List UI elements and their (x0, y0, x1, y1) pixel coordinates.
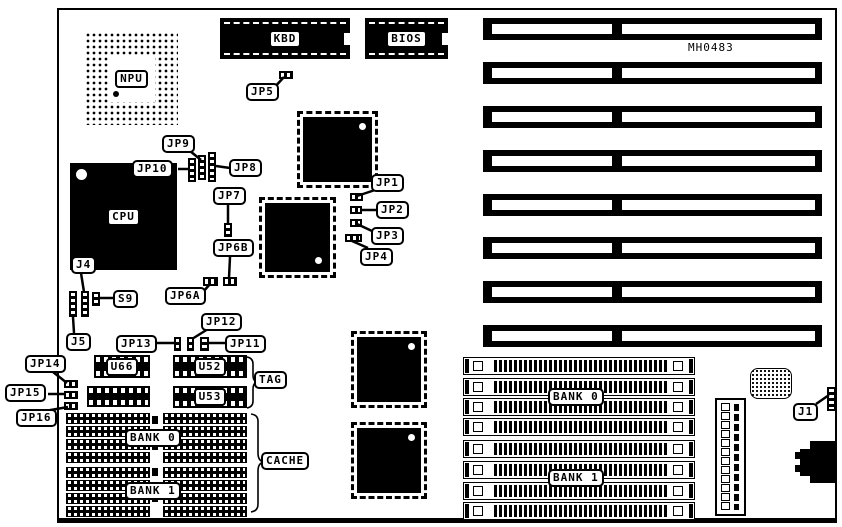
cpu-label: CPU (107, 208, 140, 226)
qfp-chip-2 (265, 203, 330, 272)
cache-dip-chip (163, 506, 247, 517)
chip-notch (344, 33, 351, 45)
chip-notch (442, 33, 449, 45)
j4-label: J4 (71, 256, 96, 274)
j4-header-b (81, 291, 89, 317)
simm-end-tab (689, 400, 693, 414)
isa-slot-segment-short (492, 331, 612, 341)
kbd-label: KBD (269, 30, 302, 48)
simm-latch (673, 402, 683, 412)
isa-slot-4 (483, 150, 822, 172)
bios-label: BIOS (386, 30, 427, 48)
jp4-label: JP4 (360, 248, 393, 266)
simm-latch (673, 465, 683, 475)
jp6b-label: JP6B (213, 239, 254, 257)
dip-below-u66 (87, 386, 150, 407)
power-pin (721, 448, 730, 456)
isa-slot-2 (483, 62, 822, 84)
simm-socket-5 (463, 440, 695, 458)
u66-chip: U66 (94, 355, 150, 378)
power-connector-key (734, 404, 739, 510)
simm-end-tab (465, 400, 469, 414)
isa-slot-segment-long (622, 287, 815, 297)
din-pin-block (795, 465, 802, 472)
jp7-jumper (224, 223, 232, 237)
power-pin (721, 466, 730, 474)
jp10-label: JP10 (132, 160, 173, 178)
npu-pga-socket: NPU (85, 32, 178, 125)
power-pin (721, 421, 730, 429)
simm-end-tab (689, 359, 693, 373)
jp12-jumper (187, 337, 194, 351)
simm-end-tab (689, 463, 693, 477)
cache-dip-chip (163, 452, 247, 463)
din-pin-block (795, 452, 802, 459)
tag-label: TAG (254, 371, 287, 389)
isa-slot-1 (483, 18, 822, 40)
jp9-header (198, 155, 206, 180)
simm-end-tab (465, 420, 469, 434)
simm-end-tab (689, 420, 693, 434)
cache-bank1-label: BANK 1 (125, 482, 181, 500)
power-pin (721, 502, 730, 510)
simm-latch (673, 422, 683, 432)
j4-header-a (69, 291, 77, 317)
j1-header (827, 387, 836, 411)
jp9-label: JP9 (162, 135, 195, 153)
isa-slot-7 (483, 281, 822, 303)
qfp-chip-3 (357, 337, 421, 402)
u66-chip-label: U66 (106, 358, 139, 376)
jp7-label: JP7 (213, 187, 246, 205)
isa-slot-5 (483, 194, 822, 216)
simm-end-tab (465, 484, 469, 498)
u52-chip-label: U52 (194, 358, 227, 376)
jp13-jumper (174, 337, 181, 351)
jp4-jumper (345, 234, 362, 242)
jp10-header (188, 158, 196, 182)
isa-slot-segment-short (492, 200, 612, 210)
simm-latch (673, 361, 683, 371)
simm-end-tab (465, 442, 469, 456)
s9-label: S9 (113, 290, 138, 308)
npu-label: NPU (115, 70, 148, 88)
simm-latch (473, 382, 483, 392)
simm-socket-8 (463, 502, 695, 520)
jp2-label: JP2 (376, 201, 409, 219)
simm-latch (473, 402, 483, 412)
simm-end-tab (465, 463, 469, 477)
jp15-label: JP15 (5, 384, 46, 402)
isa-slot-segment-long (622, 24, 815, 34)
simm-pin-row (492, 505, 669, 517)
cache-dip-chip (163, 413, 247, 424)
simm-latch (473, 422, 483, 432)
isa-slot-segment-short (492, 24, 612, 34)
isa-slot-segment-long (622, 112, 815, 122)
cache-bank0-label: BANK 0 (125, 429, 181, 447)
jp11-label: JP11 (225, 335, 266, 353)
pin1-dot (76, 169, 87, 180)
speaker-component (750, 368, 792, 399)
kbd-controller-chip: KBD (220, 18, 350, 59)
qfp-chip-1 (303, 117, 372, 182)
pin1-dot (359, 123, 366, 130)
jp16-jumper (64, 402, 78, 410)
cache-dip-chip (66, 452, 150, 463)
simm-latch (673, 506, 683, 516)
jp5-label: JP5 (246, 83, 279, 101)
jp8-label: JP8 (229, 159, 262, 177)
jp14-jumper (64, 380, 78, 388)
simm-latch (673, 444, 683, 454)
jp3-label: JP3 (371, 227, 404, 245)
jp13-label: JP13 (116, 335, 157, 353)
isa-slot-8 (483, 325, 822, 347)
simm-end-tab (465, 380, 469, 394)
jp5-jumper (279, 71, 293, 79)
jp16-label: JP16 (16, 409, 57, 427)
jp6b-jumper (223, 277, 237, 286)
cpu-chip: CPU (70, 163, 177, 270)
simm-bank1-label: BANK 1 (548, 469, 604, 487)
cache-dip-chip (66, 506, 150, 517)
simm-bank0-label: BANK 0 (548, 388, 604, 406)
isa-slot-3 (483, 106, 822, 128)
simm-pin-row (492, 421, 669, 433)
power-connector (715, 398, 746, 516)
cache-label: CACHE (261, 452, 309, 470)
isa-slot-segment-short (492, 156, 612, 166)
motherboard-layout-diagram: NPU CPU KBD BIOS MH0483 U66U52U53 TAGCAC… (0, 0, 842, 527)
power-pin (721, 403, 730, 411)
simm-latch (473, 465, 483, 475)
j5-label: J5 (66, 333, 91, 351)
s9-jumper (92, 292, 100, 306)
jp11-jumper (200, 337, 209, 351)
cache-dip-chip (163, 467, 247, 478)
simm-pin-row (492, 360, 669, 372)
simm-latch (673, 486, 683, 496)
qfp-chip-4 (357, 428, 421, 493)
simm-latch (473, 444, 483, 454)
keyboard-din-connector (810, 441, 837, 483)
power-pin (721, 457, 730, 465)
simm-pin-row (492, 443, 669, 455)
cache-dip-chip (66, 467, 150, 478)
pin1-dot (408, 343, 415, 350)
simm-end-tab (465, 504, 469, 518)
isa-slot-segment-long (622, 331, 815, 341)
isa-slot-segment-long (622, 68, 815, 78)
jp2-jumper (350, 206, 362, 214)
simm-end-tab (689, 442, 693, 456)
jp6a-label: JP6A (165, 287, 206, 305)
simm-end-tab (689, 484, 693, 498)
cache-dip-chip (66, 413, 150, 424)
simm-latch (473, 486, 483, 496)
isa-slot-segment-long (622, 156, 815, 166)
power-pin (721, 412, 730, 420)
simm-end-tab (689, 504, 693, 518)
isa-slot-segment-short (492, 243, 612, 253)
simm-latch (473, 361, 483, 371)
jp14-label: JP14 (25, 355, 66, 373)
power-pin (721, 430, 730, 438)
pin1-dot (113, 91, 119, 97)
board-part-number: MH0483 (688, 41, 734, 54)
power-pin (721, 475, 730, 483)
isa-slot-segment-short (492, 112, 612, 122)
jp6a-jumper (203, 277, 218, 286)
power-pin (721, 439, 730, 447)
simm-end-tab (689, 380, 693, 394)
u52-chip: U52 (173, 355, 247, 378)
simm-socket-4 (463, 418, 695, 436)
simm-end-tab (465, 359, 469, 373)
isa-slot-segment-long (622, 243, 815, 253)
jp3-jumper (350, 219, 362, 227)
bios-chip: BIOS (365, 18, 448, 59)
simm-latch (673, 382, 683, 392)
isa-slot-segment-short (492, 287, 612, 297)
isa-slot-segment-long (622, 200, 815, 210)
jp1-jumper (350, 193, 363, 201)
simm-latch (473, 506, 483, 516)
power-pin (721, 493, 730, 501)
jp8-header (208, 152, 216, 182)
pin1-dot (408, 434, 415, 441)
npu-socket-cavity: NPU (108, 56, 155, 102)
pin1-dot (315, 257, 322, 264)
j1-label: J1 (793, 403, 818, 421)
jp12-label: JP12 (201, 313, 242, 331)
isa-slot-6 (483, 237, 822, 259)
jp1-label: JP1 (371, 174, 404, 192)
u53-chip: U53 (173, 386, 247, 408)
jp15-jumper (64, 391, 78, 399)
simm-socket-1 (463, 357, 695, 375)
power-pin (721, 484, 730, 492)
u53-chip-label: U53 (194, 388, 227, 406)
isa-slot-segment-short (492, 68, 612, 78)
